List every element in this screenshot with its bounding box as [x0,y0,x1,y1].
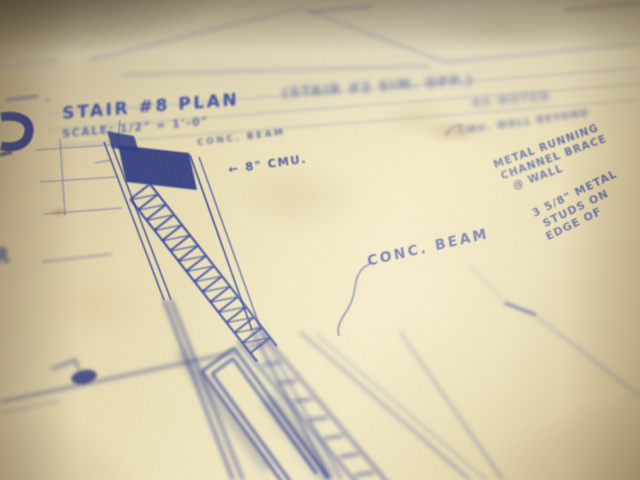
studs-leader [469,264,640,396]
top-left-marks [6,96,50,102]
background-faint-lines [0,8,640,75]
tread-tick-lines [36,139,122,216]
detail-bubble [0,116,29,155]
concrete-poche-blocks [107,131,197,190]
right-arrow-tick [42,254,112,262]
ink-blob [70,367,98,386]
top-blurred-dashes [310,3,640,12]
blueprint-linework [0,0,640,480]
blueprint-photo: STAIR #8 PLAN (STAIR #2 SIM. OPP.) AS NO… [0,0,640,480]
arrow-left-icon: ← [227,161,240,176]
squiggle-leader [338,263,371,336]
